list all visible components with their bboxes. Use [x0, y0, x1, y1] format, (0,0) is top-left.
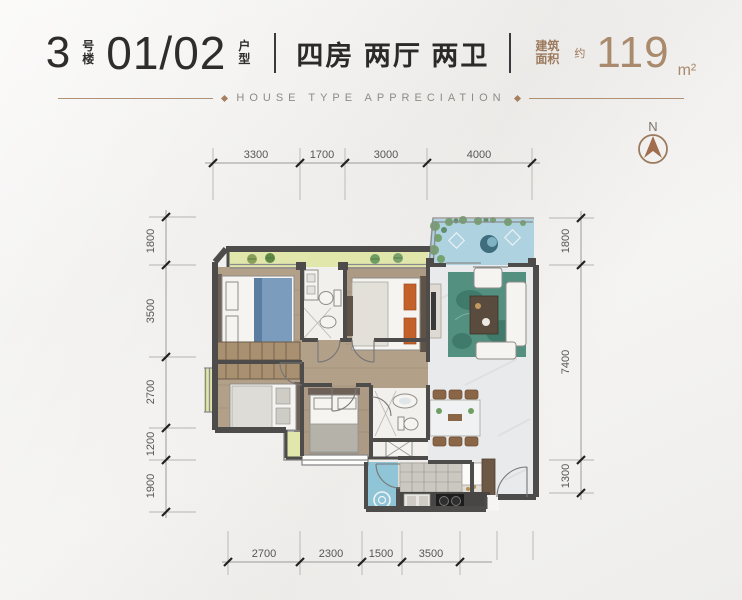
dim-top-3: 3000	[374, 149, 398, 161]
dim-bottom-3: 1500	[369, 548, 393, 560]
kitchen-counter-top	[400, 463, 462, 492]
compass-icon: N	[639, 119, 667, 163]
laundry-floor	[366, 462, 398, 509]
dim-right-2: 7400	[560, 350, 572, 374]
dim-right-1: 1800	[560, 229, 572, 253]
fridge-icon	[482, 459, 495, 497]
bed-3-icon	[230, 382, 302, 432]
kitchen-fixtures	[398, 459, 495, 509]
bench-icon	[346, 296, 353, 336]
bed-4-icon	[308, 388, 360, 453]
dim-top-2: 1700	[310, 149, 334, 161]
dim-bottom-4: 3500	[419, 548, 443, 560]
dim-left-2: 3500	[145, 299, 157, 323]
compass-north-label: N	[648, 119, 657, 134]
dim-top-1: 3300	[244, 149, 268, 161]
wardrobe-bedroom-3	[216, 363, 300, 379]
floorplan-page: { "header": { "building_number": "3", "b…	[0, 0, 742, 600]
dim-right-3: 1300	[560, 464, 572, 488]
toilet-2-icon	[404, 418, 418, 430]
dim-left-4: 1200	[145, 432, 157, 456]
armchair	[474, 268, 502, 288]
toilet-2-tank-icon	[398, 417, 404, 430]
dimensions-left: 1800 3500 2700 1200 1900	[145, 210, 196, 518]
dim-left-1: 1800	[145, 229, 157, 253]
closet-bedroom-1	[216, 342, 300, 360]
dimensions-bottom: 2700 2300 1500 3500	[222, 531, 533, 575]
dining-set	[430, 390, 480, 446]
entry-threshold	[487, 495, 499, 511]
toilet-icon	[319, 292, 333, 305]
dim-bottom-1: 2700	[252, 548, 276, 560]
dim-bottom-2: 2300	[319, 548, 343, 560]
dimensions-right: 1800 7400 1300	[549, 211, 594, 500]
bed-1-icon	[214, 274, 294, 350]
toilet-tank-icon	[334, 290, 341, 306]
dim-left-3: 2700	[145, 380, 157, 404]
sofa	[506, 282, 526, 346]
dim-left-5: 1900	[145, 474, 157, 498]
tv-icon	[431, 292, 436, 330]
coffee-table	[470, 296, 498, 334]
bench-sofa	[476, 342, 516, 359]
dim-top-4: 4000	[467, 149, 491, 161]
dimensions-top: 3300 1700 3000 4000	[205, 148, 540, 200]
water-feature-highlight	[487, 237, 497, 247]
floorplan-drawing: N	[0, 0, 742, 600]
